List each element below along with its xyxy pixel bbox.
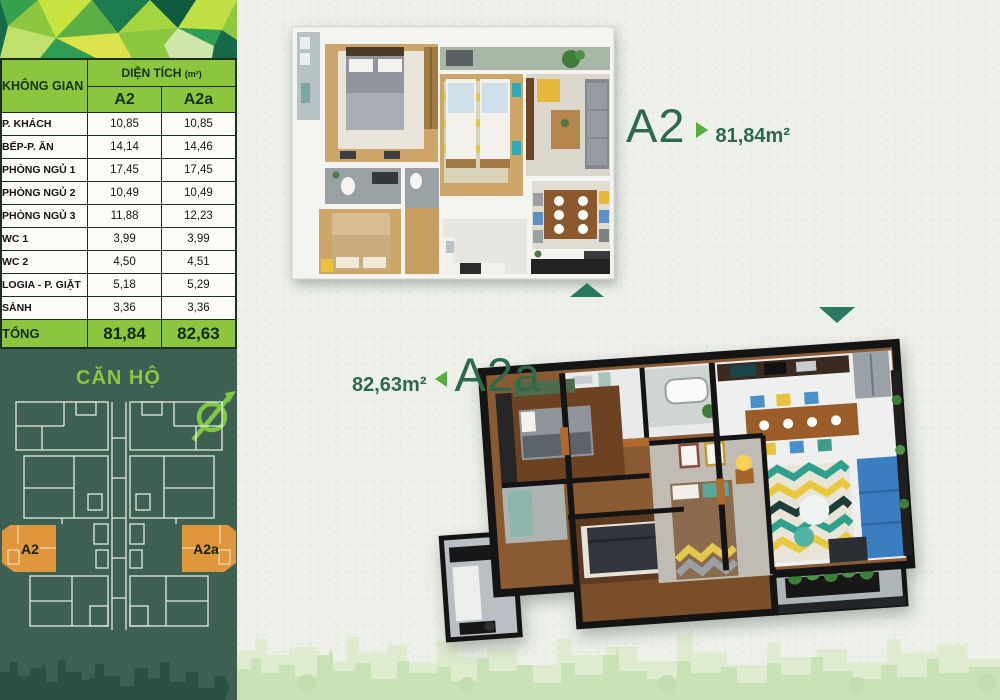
table-total-row: TỔNG 81,84 82,63 — [1, 320, 236, 349]
unit-label-a2: A2 — [21, 541, 39, 557]
a2-plan-label: A281,84m² — [626, 100, 790, 152]
column-a2: A2 — [88, 87, 162, 113]
sidebar-skyline-silhouette — [0, 642, 237, 700]
building-key-plan: A2 A2a — [2, 398, 236, 638]
table-row: PHÒNG NGỦ 3 11,88 12,23 — [1, 205, 236, 228]
table-row: WC 1 3,99 3,99 — [1, 228, 236, 251]
triangle-down-icon — [819, 307, 855, 323]
triangle-up-icon — [570, 283, 604, 297]
a2a-plan-label: 82,63m²A2a — [352, 348, 541, 402]
table-row: WC 2 4,50 4,51 — [1, 251, 236, 274]
column-a2a: A2a — [161, 87, 236, 113]
unit-label-a2a: A2a — [193, 541, 219, 557]
a2a-plan-name: A2a — [455, 348, 542, 401]
triangle-right-icon — [696, 122, 708, 138]
a2-floorplan-render — [288, 23, 620, 285]
a2-plan-area: 81,84m² — [716, 125, 791, 147]
table-row: PHÒNG NGỦ 1 17,45 17,45 — [1, 159, 236, 182]
table-row: SẢNH 3,36 3,36 — [1, 297, 236, 320]
table-header-row: KHÔNG GIAN DIỆN TÍCH (m²) — [1, 59, 236, 87]
area-column-header: DIỆN TÍCH (m²) — [88, 59, 236, 87]
table-row: P. KHÁCH 10,85 10,85 — [1, 113, 236, 136]
a2-plan-name: A2 — [626, 99, 686, 152]
triangle-left-icon — [435, 371, 447, 387]
unit-section-title: CĂN HỘ — [0, 367, 237, 390]
table-row: BẾP-P. ĂN 14,14 14,46 — [1, 136, 236, 159]
a2a-plan-area: 82,63m² — [352, 374, 427, 396]
table-row: LOGIA - P. GIẶT 5,18 5,29 — [1, 274, 236, 297]
left-sidebar: KHÔNG GIAN DIỆN TÍCH (m²) A2 A2a P. KHÁC… — [0, 0, 237, 700]
geometric-banner — [0, 0, 237, 58]
area-comparison-table: KHÔNG GIAN DIỆN TÍCH (m²) A2 A2a P. KHÁC… — [0, 58, 237, 349]
space-column-header: KHÔNG GIAN — [1, 59, 88, 113]
table-row: PHÒNG NGỦ 2 10,49 10,49 — [1, 182, 236, 205]
